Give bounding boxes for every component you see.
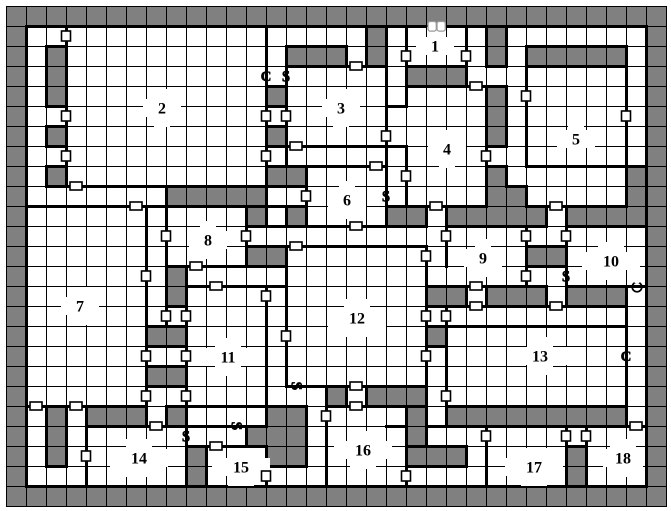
svg-text:18: 18 [615, 451, 631, 468]
svg-text:6: 6 [343, 193, 351, 210]
svg-text:15: 15 [233, 460, 249, 477]
svg-text:2: 2 [158, 101, 166, 118]
svg-text:14: 14 [131, 451, 147, 468]
svg-text:C: C [261, 69, 272, 85]
svg-text:5: 5 [572, 132, 580, 149]
svg-text:10: 10 [603, 254, 619, 271]
svg-text:$: $ [282, 69, 290, 86]
svg-text:4: 4 [443, 142, 451, 159]
svg-text:12: 12 [349, 311, 365, 328]
svg-text:8: 8 [204, 233, 212, 250]
svg-text:C: C [621, 349, 632, 365]
svg-text:$: $ [382, 189, 390, 206]
svg-text:16: 16 [355, 443, 371, 460]
svg-text:$: $ [562, 269, 570, 286]
svg-text:13: 13 [532, 349, 548, 366]
svg-text:S: S [228, 422, 245, 431]
svg-text:11: 11 [220, 350, 235, 367]
svg-text:9: 9 [479, 251, 487, 268]
svg-text:S: S [288, 382, 305, 391]
svg-text:3: 3 [337, 101, 345, 118]
svg-text:7: 7 [76, 299, 84, 316]
svg-text:$: $ [182, 429, 190, 446]
svg-text:17: 17 [526, 460, 542, 477]
svg-text:1: 1 [431, 39, 439, 56]
